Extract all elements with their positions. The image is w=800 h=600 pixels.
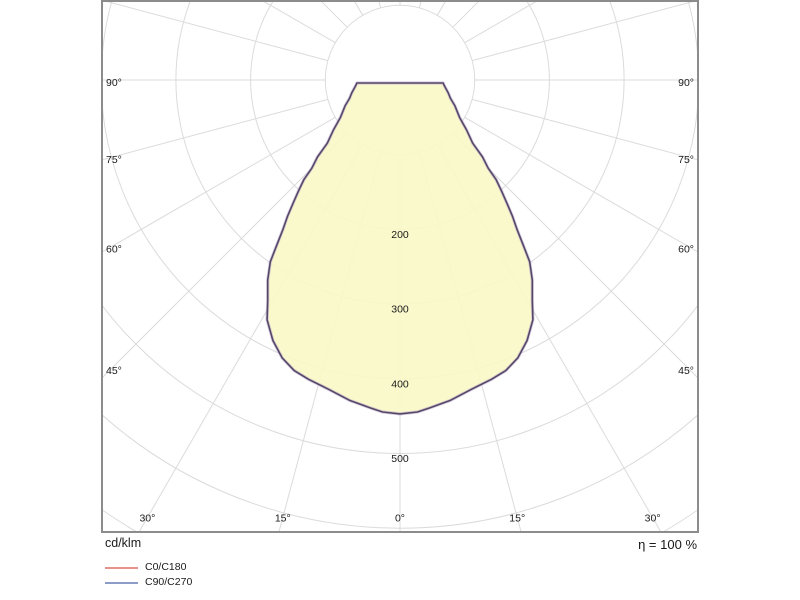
svg-text:45°: 45°: [678, 365, 694, 377]
svg-text:60°: 60°: [106, 243, 122, 255]
svg-text:15°: 15°: [509, 513, 525, 525]
efficiency-label: η = 100 %: [638, 537, 697, 552]
unit-label: cd/klm: [105, 536, 141, 550]
legend-row-c90-c270: C90/C270: [105, 575, 192, 590]
svg-text:30°: 30°: [645, 513, 661, 525]
legend-label-c90c270: C90/C270: [145, 575, 192, 590]
polar-intensity-chart: 45°45°60°60°75°75°90°90°0°15°15°30°30°20…: [0, 0, 800, 600]
svg-text:0°: 0°: [395, 513, 405, 525]
svg-text:500: 500: [391, 453, 409, 465]
svg-text:60°: 60°: [678, 243, 694, 255]
svg-text:300: 300: [391, 304, 409, 316]
svg-text:200: 200: [391, 229, 409, 241]
svg-text:75°: 75°: [678, 154, 694, 166]
legend-line-c90c270-icon: [105, 582, 138, 584]
svg-text:45°: 45°: [106, 365, 122, 377]
svg-text:75°: 75°: [106, 154, 122, 166]
svg-text:90°: 90°: [106, 77, 122, 89]
legend-label-c0c180: C0/C180: [145, 560, 186, 575]
svg-text:90°: 90°: [678, 77, 694, 89]
legend-row-c0-c180: C0/C180: [105, 560, 192, 575]
chart-legend: C0/C180 C90/C270: [105, 560, 192, 590]
svg-text:30°: 30°: [139, 513, 155, 525]
svg-text:15°: 15°: [275, 513, 291, 525]
svg-text:400: 400: [391, 378, 409, 390]
legend-line-c0c180-icon: [105, 567, 138, 569]
photometric-diagram-page: 45°45°60°60°75°75°90°90°0°15°15°30°30°20…: [0, 0, 800, 600]
